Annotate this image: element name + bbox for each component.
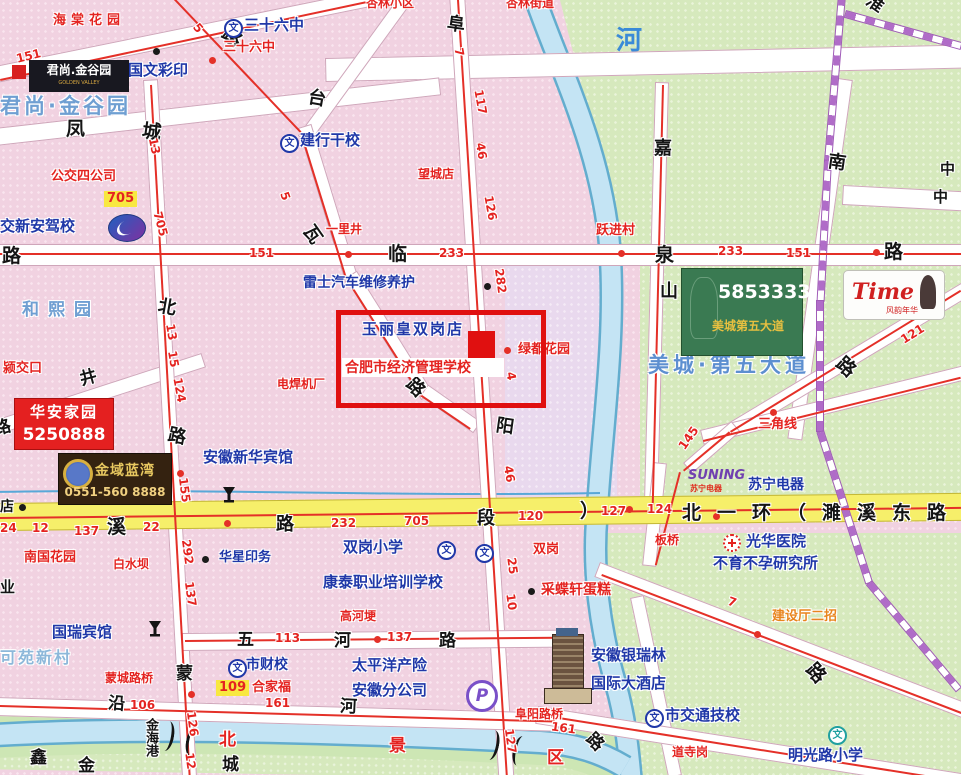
school-icon: 文 <box>228 659 247 678</box>
place-shuanggang: 双岗 <box>533 543 559 556</box>
edge-label-zhong-1: 中 <box>940 162 955 177</box>
terminus-badge-705: 705 <box>104 191 137 207</box>
driving-school-logo-swirl <box>114 215 141 239</box>
road-char-lu-yellow: 路 <box>276 516 294 534</box>
place-hejiafu: 合家福 <box>252 681 291 694</box>
school-icon-glyph: 文 <box>650 713 660 724</box>
place-banqiao: 板桥 <box>655 534 679 546</box>
hotel-glass-icon <box>222 486 236 504</box>
edge-label-dian: 店 <box>0 500 14 514</box>
road-char-bei-mengcheng: 北 <box>157 298 178 319</box>
stop-dot <box>374 636 381 643</box>
district-meicheng: 美城·第五大道 <box>648 355 810 376</box>
building-roof <box>556 628 578 636</box>
suning-logo-sub: 苏宁电器 <box>690 483 722 494</box>
meicheng-phone: 5853333 <box>718 281 811 303</box>
badge-109-text: 109 <box>219 680 246 695</box>
poi-kangtai: 康泰职业培训学校 <box>323 575 443 590</box>
poi-dot <box>528 588 535 595</box>
suning-logo-block: SUNING 苏宁电器 <box>688 468 746 496</box>
place-caidiexuan: 采蝶轩蛋糕 <box>541 583 611 597</box>
huaan-phone: 5250888 <box>15 425 113 445</box>
road-char-shan: 山 <box>660 283 678 301</box>
huaan-name: 华安家园 <box>15 399 113 425</box>
suning-logo: SUNING <box>688 468 745 483</box>
park-label-qu: 区 <box>547 750 564 767</box>
junshang-red-square <box>12 65 26 79</box>
school-icon-glyph: 文 <box>480 548 490 559</box>
place-xinglinxiaoqu: 杏林小区 <box>366 0 414 9</box>
junshang-black-box: 君尚.金谷园 GOLDEN VALLEY <box>29 60 129 92</box>
route-161-yanhe: 161 <box>265 697 290 709</box>
route-161-ext: 161 <box>550 720 576 735</box>
route-233-linquan-e: 233 <box>718 245 743 257</box>
school-icon: 文 <box>224 19 243 38</box>
billboard-huaan: 华安家园 5250888 <box>14 398 114 450</box>
poi-guanghua: 光华医院 <box>746 534 806 549</box>
route-46-fuyang-n: 46 <box>474 142 489 161</box>
route-12-yellow: 12 <box>32 522 49 534</box>
route-124-yellow: 124 <box>647 503 672 515</box>
road-char-feng: 凤 <box>66 120 85 139</box>
poi-shijiaotong: 市交通技校 <box>665 708 740 723</box>
road-char-duan: 段 <box>477 510 495 528</box>
route-113-wuhe: 113 <box>275 632 300 644</box>
place-baishuiba: 白水坝 <box>113 558 149 570</box>
road-char-tai: 台 <box>307 89 328 110</box>
poi-taipingyang-line1: 太平洋产险 <box>352 658 427 673</box>
route-12-meng-s: 12 <box>183 752 197 770</box>
place-gaohegeng: 高河埂 <box>340 610 376 622</box>
road-char-lu-wuhe: 路 <box>439 633 456 650</box>
road-char-wu: 五 <box>237 632 254 649</box>
route-13-meng: 13 <box>164 323 179 342</box>
edge-label-zhong-2: 中 <box>933 190 948 205</box>
route-151-linquan-e: 151 <box>786 247 811 259</box>
poi-guoruibinguan: 国瑞宾馆 <box>52 625 112 640</box>
route-line-linquan <box>0 253 961 255</box>
route-24-yellow: 24 <box>0 522 17 534</box>
place-yuejincun: 跃进村 <box>596 224 635 237</box>
school-icon-glyph: 文 <box>833 730 843 741</box>
road-label-beiyihuan: 北一环（濉溪东路 <box>682 504 961 523</box>
poi-xinhuabinguan: 安徽新华宾馆 <box>203 450 293 465</box>
place-dianhanjichang: 电焊机厂 <box>277 378 325 390</box>
poi-suning: 苏宁电器 <box>748 478 804 492</box>
road-char-nan: 南 <box>827 153 847 173</box>
poi-huaxingyinwu: 华星印务 <box>219 551 271 564</box>
place-xinglinjiedao: 杏林街道 <box>506 0 554 9</box>
edge-label-ye: 业 <box>0 580 15 595</box>
poi-dot <box>202 556 209 563</box>
poi-mingguanglu: 明光路小学 <box>788 748 863 763</box>
river-label: 河 <box>616 28 642 54</box>
place-wangchengdian: 望城店 <box>418 168 454 180</box>
road-char-meng: 蒙 <box>176 666 193 683</box>
road-char-he-wuhe: 河 <box>334 633 351 650</box>
stop-dot <box>188 691 195 698</box>
parking-icon: P <box>466 680 498 712</box>
route-126-meng-s: 126 <box>185 711 200 737</box>
district-hexiyuan: 和熙园 <box>22 302 100 319</box>
road-char-jia: 嘉 <box>654 140 672 158</box>
billboard-junshang: 君尚.金谷园 GOLDEN VALLEY <box>12 60 130 94</box>
place-jiansheting: 建设厅二招 <box>772 610 837 623</box>
poi-sanshiliuzhong: 三十六中 <box>244 18 304 33</box>
jinyu-phone: 0551-560 8888 <box>59 485 171 499</box>
route-137-wuhe: 137 <box>387 631 412 643</box>
junshang-name: 君尚.金谷园 <box>29 60 129 80</box>
route-10: 10 <box>504 593 518 611</box>
stop-dot <box>626 506 633 513</box>
road-char-fu: 阜 <box>446 15 466 35</box>
road-char-jin: 金 <box>78 758 95 775</box>
stop-dot <box>754 631 761 638</box>
road-char-cheng-s: 城 <box>222 757 239 774</box>
route-137-meng: 137 <box>183 581 198 607</box>
route-127-yellow: 127 <box>601 505 626 517</box>
poi-leishi: 雷士汽车维修养护 <box>303 276 415 290</box>
hotel-building-icon <box>544 628 590 704</box>
route-155-meng: 155 <box>177 477 192 503</box>
stop-dot <box>177 470 184 477</box>
park-label-jing: 景 <box>389 738 406 755</box>
poi-shuanggang-xiaoxue: 双岗小学 <box>343 540 403 555</box>
poi-guowencaiyin: 国文彩印 <box>128 63 188 78</box>
park-label-bei: 北 <box>219 732 236 749</box>
route-233-linquan-w: 233 <box>439 247 464 259</box>
poi-dot <box>153 48 160 55</box>
school-icon-glyph: 文 <box>229 23 239 34</box>
route-292-meng: 292 <box>180 539 195 565</box>
road-char-lu-linquan-west: 路 <box>2 247 21 266</box>
driving-school-logo <box>108 214 146 242</box>
place-haitang: 海棠花园 <box>53 14 125 27</box>
hospital-icon <box>723 534 741 552</box>
terminus-badge-109: 109 <box>216 680 249 696</box>
place-gongjiao: 公交四公司 <box>51 170 116 183</box>
time-figure-art <box>920 275 936 309</box>
route-22-yellow: 22 <box>143 521 160 533</box>
jinyu-name: 金域蓝湾 <box>95 460 155 480</box>
route-106-yanhe: 106 <box>130 699 155 711</box>
road-char-yan: 沿 <box>107 695 125 713</box>
place-nanguohuayuan: 南国花园 <box>24 551 76 564</box>
billboard-meicheng: 5853333 美城第五大道 <box>681 268 803 356</box>
school-icon: 文 <box>280 134 299 153</box>
place-mengchengluqiao: 蒙城路桥 <box>105 672 153 684</box>
annotation-red-box <box>336 310 546 408</box>
stop-dot <box>770 409 777 416</box>
school-icon: 文 <box>475 544 494 563</box>
poi-yinruilin-line1: 安徽银瑞林 <box>591 648 666 663</box>
school-icon: 文 <box>645 709 664 728</box>
route-46-fuyang-s: 46 <box>502 465 517 484</box>
place-fuyangluqiao: 阜阳路桥 <box>515 708 563 720</box>
place-yilijing: 一里井 <box>326 223 362 235</box>
meicheng-name: 美城第五大道 <box>712 317 784 334</box>
parking-icon-glyph: P <box>476 686 488 706</box>
hospital-icon-cross-h <box>728 542 736 544</box>
billboard-time: Time 风韵年华 <box>843 270 945 320</box>
route-282: 282 <box>493 268 508 294</box>
poi-taipingyang-line2: 安徽分公司 <box>352 683 427 698</box>
poi-dot <box>19 504 26 511</box>
poi-buyubuyun: 不育不孕研究所 <box>713 556 818 571</box>
road-char-he-yanhe: 河 <box>340 699 358 717</box>
route-13-feng: 13 <box>147 137 162 156</box>
junshang-sub: GOLDEN VALLEY <box>29 80 129 86</box>
road-linquan <box>0 244 961 266</box>
place-sanjiaoxian: 三角线 <box>758 418 797 431</box>
route-127-fuyang-s: 127 <box>503 728 518 754</box>
route-137-yellow: 137 <box>74 525 99 537</box>
poi-shicaixiao: 市财校 <box>246 658 288 672</box>
road-char-bracket: ） <box>580 502 599 521</box>
billboard-jinyu: 金域蓝湾 0551-560 8888 <box>58 453 172 505</box>
poi-dot <box>484 283 491 290</box>
school-icon-glyph: 文 <box>442 545 452 556</box>
city-map: 路 凤 城 台 瓦 阜 阳 临 泉 路 路 北 路 蒙 城 嘉 山 南 淮 井 … <box>0 0 961 775</box>
road-char-lu-mengcheng: 路 <box>166 426 187 447</box>
badge-705-text: 705 <box>107 191 134 206</box>
building-base <box>544 688 592 704</box>
school-icon-glyph: 文 <box>233 663 243 674</box>
route-705-yellow: 705 <box>404 515 429 527</box>
route-151-linquan-w: 151 <box>249 247 274 259</box>
stop-sanshiliuzhong: 三十六中 <box>223 41 275 54</box>
time-sub: 风韵年华 <box>886 305 918 316</box>
stop-dot <box>873 249 880 256</box>
place-daosigang: 道寺岗 <box>672 746 708 758</box>
road-char-quan: 泉 <box>655 246 674 265</box>
road-char-xin: 鑫 <box>30 750 47 767</box>
school-icon: 文 <box>828 726 847 745</box>
route-15-meng: 15 <box>166 350 181 369</box>
place-yingjiaokou: 颍交口 <box>3 362 42 375</box>
school-icon-glyph: 文 <box>285 138 295 149</box>
stop-dot <box>618 250 625 257</box>
time-name: Time <box>852 279 914 305</box>
route-25: 25 <box>505 557 519 575</box>
road-label-jinhaigang: 金海港 <box>144 718 157 757</box>
poi-jiaoxinan: 交新安驾校 <box>0 219 75 234</box>
road-char-lu-linquan-east: 路 <box>884 243 903 262</box>
poi-jianhangganxiao: 建行干校 <box>300 133 360 148</box>
hotel-glass-icon <box>148 620 162 638</box>
road-char-xi-yellow: 溪 <box>107 518 126 537</box>
poi-yinruilin-line2: 国际大酒店 <box>591 676 666 691</box>
route-120-yellow: 120 <box>518 510 543 522</box>
stop-dot <box>345 251 352 258</box>
school-icon: 文 <box>437 541 456 560</box>
stop-dot <box>209 57 216 64</box>
route-232-yellow: 232 <box>331 517 356 529</box>
district-keyuanxincun: 可苑新村 <box>0 650 72 666</box>
road-char-lin: 临 <box>388 245 407 264</box>
district-junshang: 君尚·金谷园 <box>0 96 131 117</box>
road-char-yang: 阳 <box>495 417 515 437</box>
stop-dot <box>224 520 231 527</box>
